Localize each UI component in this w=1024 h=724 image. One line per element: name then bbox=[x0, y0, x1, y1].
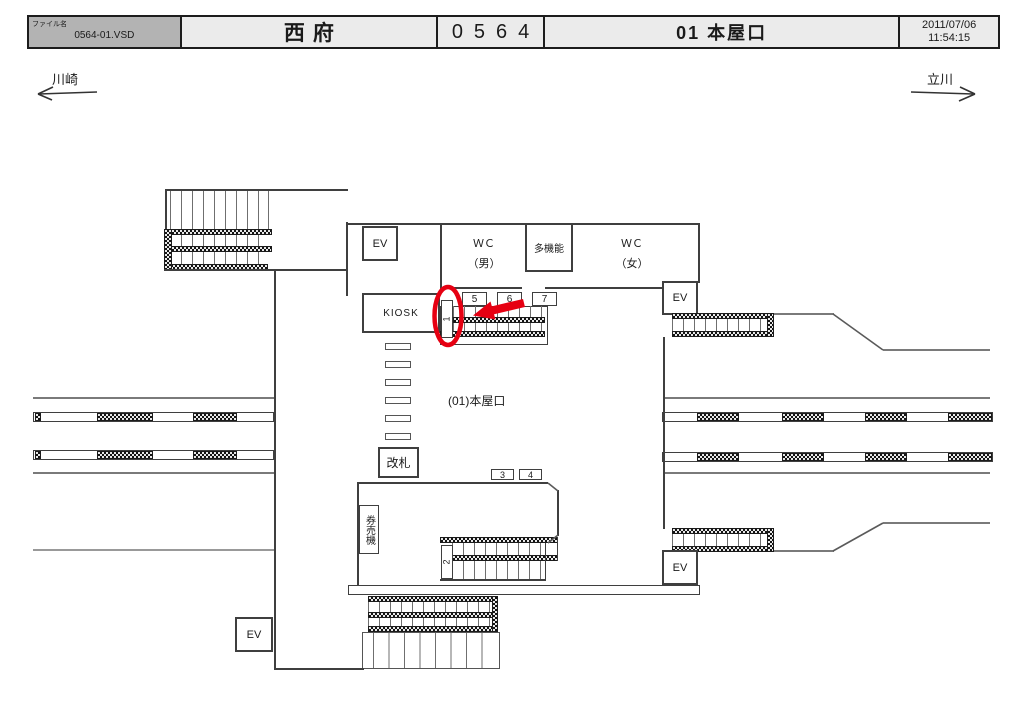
title-block: ファイル名 0564-01.VSD 西府 0564 01 本屋口 2011/07… bbox=[27, 15, 1000, 49]
elevator-box-sw: EV bbox=[235, 617, 273, 652]
elevator-box-nw: EV bbox=[362, 226, 398, 261]
ticket-gate-unit bbox=[385, 361, 411, 368]
tactile-block bbox=[948, 453, 992, 461]
platform-edge-line bbox=[774, 313, 834, 315]
tactile-block bbox=[193, 413, 237, 421]
platform-line bbox=[33, 472, 274, 474]
wc-wall-line bbox=[545, 287, 665, 289]
direction-right-label: 立川 bbox=[927, 69, 953, 88]
multifunction-toilet-box: 多機能 bbox=[525, 223, 573, 272]
platform-edge-line bbox=[774, 550, 834, 552]
ad-position-4: 4 bbox=[519, 469, 542, 480]
elevator-box-ne: EV bbox=[662, 281, 698, 315]
wc-men-label: ＷＣ （男） bbox=[452, 228, 516, 278]
passage-band bbox=[348, 585, 700, 595]
datetime-cell: 2011/07/06 11:54:15 bbox=[900, 17, 998, 47]
sheet-title: 01 本屋口 bbox=[545, 17, 900, 47]
file-name-value: 0564-01.VSD bbox=[29, 30, 180, 41]
north-wall-line bbox=[346, 223, 700, 225]
ticket-machines-box: 券売機 bbox=[359, 505, 379, 554]
tactile-block bbox=[782, 453, 824, 461]
ticket-gate-unit bbox=[385, 379, 411, 386]
tactile-block bbox=[697, 453, 739, 461]
platform-edge-line bbox=[883, 349, 990, 351]
wc-men-line1: ＷＣ bbox=[473, 235, 495, 251]
ad-position-2: 2 bbox=[441, 545, 453, 579]
tactile-paving-band bbox=[662, 412, 993, 422]
wc-women-line1: ＷＣ bbox=[621, 235, 643, 251]
stair-edge-line bbox=[557, 537, 558, 561]
ticket-gate-unit bbox=[385, 415, 411, 422]
elevator-box-se: EV bbox=[662, 550, 698, 585]
tactile-block bbox=[782, 413, 824, 421]
ad-position-1: 1 bbox=[441, 300, 453, 338]
platform-line bbox=[663, 472, 990, 474]
stair-edge-line bbox=[440, 579, 546, 581]
time-value: 11:54:15 bbox=[928, 32, 970, 45]
stair-treads bbox=[368, 602, 494, 612]
station-drawing-canvas: ファイル名 0564-01.VSD 西府 0564 01 本屋口 2011/07… bbox=[0, 0, 1024, 724]
stair-treads bbox=[368, 618, 494, 626]
direction-left-label: 川崎 bbox=[52, 69, 78, 88]
tactile-block bbox=[697, 413, 739, 421]
annotation-overlay bbox=[0, 0, 1024, 724]
tactile-paving-band bbox=[33, 412, 274, 422]
ad-position-3: 3 bbox=[491, 469, 514, 480]
platform-line bbox=[33, 397, 274, 399]
east-wall-line bbox=[698, 223, 700, 283]
platform-line bbox=[663, 397, 990, 399]
concourse-wall-line bbox=[557, 490, 559, 536]
ad-position-2-number: 2 bbox=[442, 559, 452, 564]
stair-landing-strip bbox=[672, 331, 770, 337]
stair-edge-strip bbox=[164, 229, 172, 271]
stair-edge-strip bbox=[767, 313, 774, 337]
tactile-block bbox=[865, 453, 907, 461]
tactile-block bbox=[35, 451, 41, 459]
stair-edge-strip bbox=[767, 528, 774, 552]
west-wall-line bbox=[274, 270, 276, 669]
ad-position-1-number: 1 bbox=[442, 316, 452, 321]
wc-women-line2: （女） bbox=[616, 255, 649, 271]
tactile-block bbox=[193, 451, 237, 459]
stair-treads bbox=[170, 191, 269, 229]
stair-edge-strip bbox=[492, 596, 498, 632]
tactile-paving-band bbox=[662, 452, 993, 462]
ad-position-6: 6 bbox=[497, 292, 522, 306]
wc-men-line2: （男） bbox=[468, 255, 501, 271]
left-direction-arrow bbox=[38, 87, 97, 100]
stair-landing-strip bbox=[452, 555, 558, 561]
platform-edge-line bbox=[883, 522, 990, 524]
wc-women-label: ＷＣ （女） bbox=[600, 228, 664, 278]
ticket-gate-box: 改札 bbox=[378, 447, 419, 478]
ticket-gate-unit bbox=[385, 397, 411, 404]
wall-line bbox=[346, 222, 348, 296]
area-name-label: (01)本屋口 bbox=[448, 392, 505, 409]
right-direction-arrow bbox=[911, 87, 975, 101]
ticket-gate-unit bbox=[385, 343, 411, 350]
wall-line bbox=[164, 269, 348, 271]
kiosk-box: KIOSK bbox=[362, 293, 440, 333]
slanted-outline-lines bbox=[548, 314, 883, 551]
station-code: 0564 bbox=[438, 17, 545, 47]
date-value: 2011/07/06 bbox=[922, 19, 976, 32]
file-name-cell: ファイル名 0564-01.VSD bbox=[29, 17, 182, 47]
ad-position-5: 5 bbox=[462, 292, 487, 306]
stair-treads bbox=[672, 534, 770, 546]
concourse-wall-line bbox=[357, 482, 548, 484]
stair-treads bbox=[452, 543, 546, 580]
stair-landing-strip bbox=[440, 331, 545, 337]
tactile-block bbox=[948, 413, 992, 421]
ticket-gate-unit bbox=[385, 433, 411, 440]
file-name-label: ファイル名 bbox=[32, 19, 67, 29]
wc-wall-line bbox=[440, 223, 442, 289]
tactile-paving-band bbox=[33, 450, 274, 460]
stair-landing-strip bbox=[453, 317, 545, 323]
tactile-block bbox=[97, 451, 153, 459]
ad-position-7: 7 bbox=[532, 292, 557, 306]
south-wall-line bbox=[274, 668, 364, 670]
stair-edge-line bbox=[545, 543, 546, 580]
station-name: 西府 bbox=[182, 17, 438, 47]
tactile-block bbox=[865, 413, 907, 421]
wc-wall-line bbox=[440, 287, 522, 289]
tactile-block bbox=[97, 413, 153, 421]
platform-edge-line bbox=[33, 549, 274, 551]
tactile-block bbox=[35, 413, 41, 421]
stair-treads bbox=[373, 633, 497, 668]
east-wall-line bbox=[663, 337, 665, 529]
